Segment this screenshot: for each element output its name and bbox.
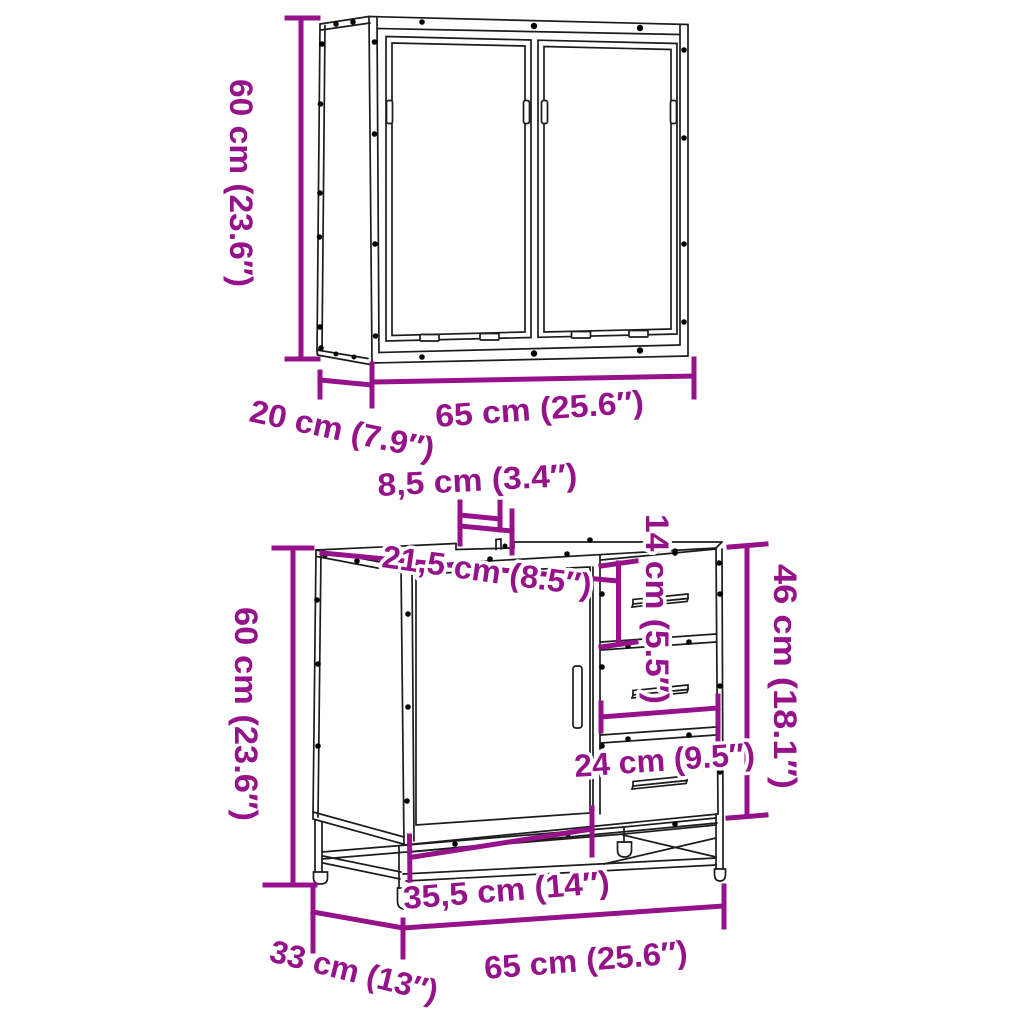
svg-text:60 cm (23.6″): 60 cm (23.6″) (228, 607, 264, 821)
svg-text:46 cm (18.1″): 46 cm (18.1″) (767, 564, 803, 789)
svg-text:14 cm (5.5″): 14 cm (5.5″) (639, 514, 675, 704)
svg-text:60 cm (23.6″): 60 cm (23.6″) (223, 79, 259, 287)
